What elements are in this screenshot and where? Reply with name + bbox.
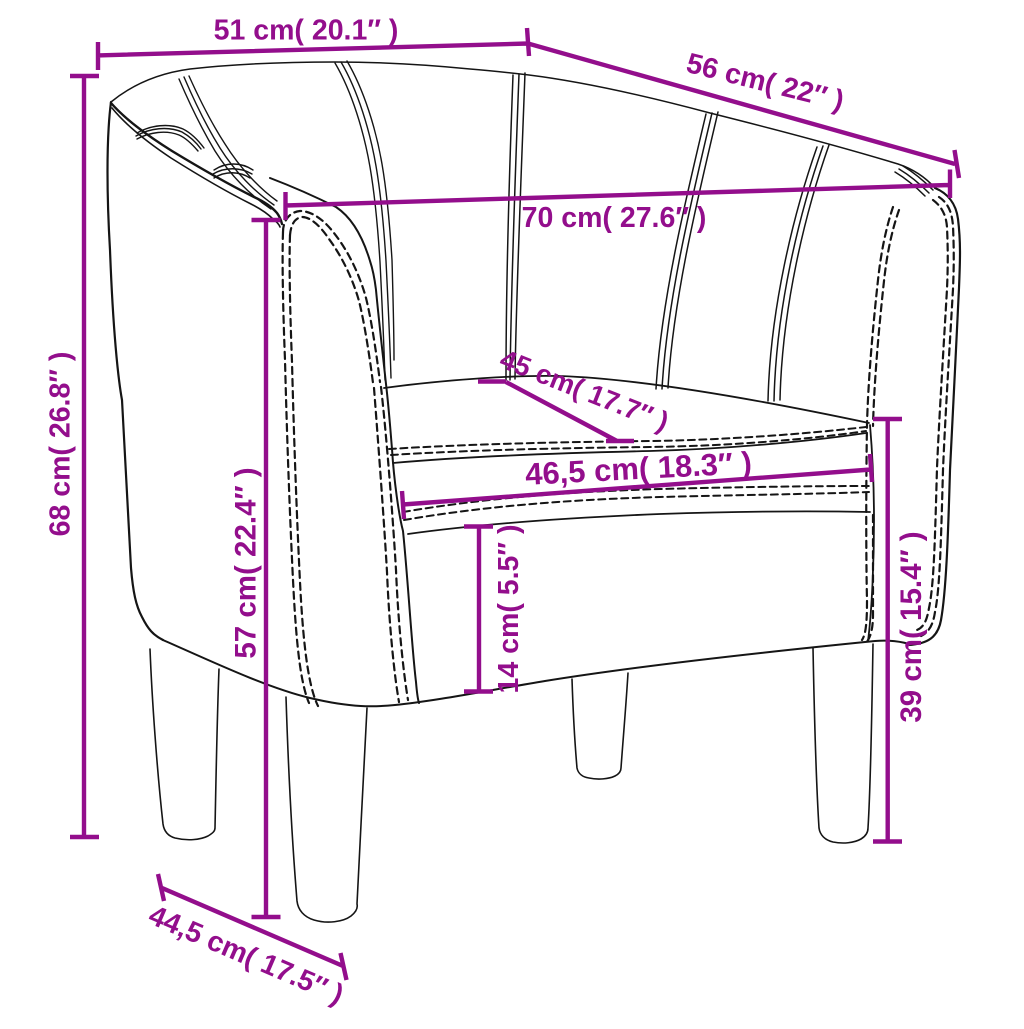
svg-text:68 cm( 26.8″ ): 68 cm( 26.8″ ) [45,352,77,537]
svg-text:57 cm( 22.4″ ): 57 cm( 22.4″ ) [230,467,263,658]
svg-text:14 cm( 5.5″ ): 14 cm( 5.5″ ) [493,525,525,694]
svg-text:70 cm( 27.6″ ): 70 cm( 27.6″ ) [522,202,707,234]
svg-text:39 cm( 15.4″ ): 39 cm( 15.4″ ) [895,531,928,722]
svg-text:51 cm( 20.1″ ): 51 cm( 20.1″ ) [214,15,399,47]
